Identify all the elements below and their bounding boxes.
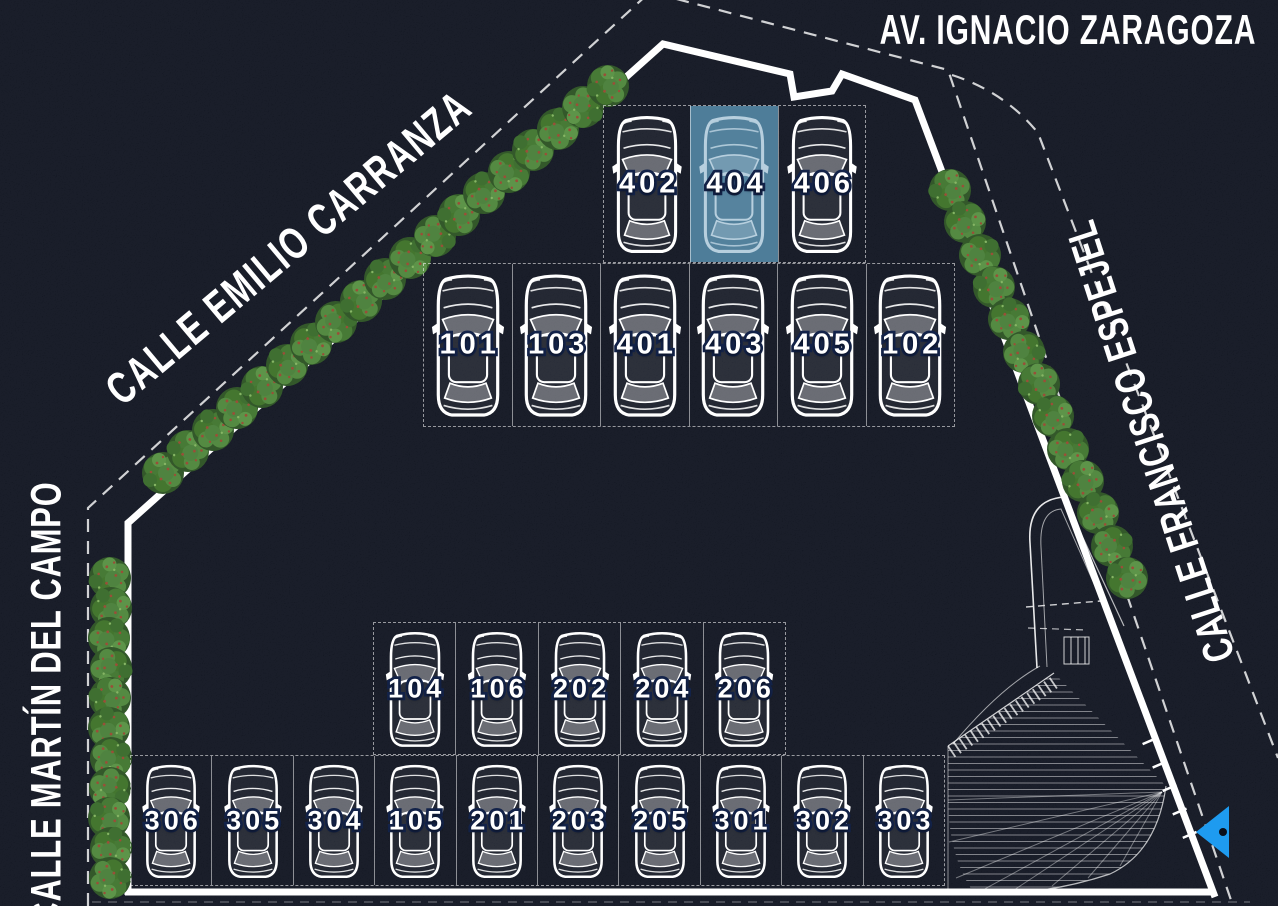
space-number: 206 <box>714 673 775 704</box>
space-number: 405 <box>790 329 854 362</box>
parking-space-404[interactable]: 404 <box>690 106 777 262</box>
parking-space-305[interactable]: 305 <box>211 756 292 885</box>
parking-space-205[interactable]: 205 <box>618 756 699 885</box>
parking-space-102[interactable]: 102 <box>866 264 955 426</box>
parking-space-402[interactable]: 402 <box>604 106 690 262</box>
parking-space-301[interactable]: 301 <box>700 756 781 885</box>
space-number: 103 <box>524 329 588 362</box>
space-number: 302 <box>792 805 853 836</box>
parking-space-306[interactable]: 306 <box>131 756 211 885</box>
space-number: 202 <box>549 673 610 704</box>
space-number: 304 <box>303 805 364 836</box>
space-number: 203 <box>548 805 609 836</box>
parking-row-bottom: 306 305 304 105 201 203 205 301 <box>130 755 945 886</box>
parking-row-upper: 101 103 401 403 405 102 <box>423 263 955 427</box>
space-number: 102 <box>878 329 942 362</box>
parking-space-406[interactable]: 406 <box>778 106 865 262</box>
space-number: 403 <box>701 329 765 362</box>
parking-space-106[interactable]: 106 <box>455 623 537 754</box>
parking-space-105[interactable]: 105 <box>374 756 455 885</box>
parking-space-103[interactable]: 103 <box>512 264 601 426</box>
space-number: 205 <box>629 805 690 836</box>
space-number: 105 <box>385 805 446 836</box>
space-number: 406 <box>790 168 854 201</box>
space-number: 201 <box>466 805 527 836</box>
parking-space-403[interactable]: 403 <box>689 264 778 426</box>
space-number: 106 <box>467 673 528 704</box>
space-number: 301 <box>711 805 772 836</box>
space-number: 305 <box>222 805 283 836</box>
space-number: 101 <box>436 329 500 362</box>
parking-space-401[interactable]: 401 <box>600 264 689 426</box>
parking-space-204[interactable]: 204 <box>620 623 702 754</box>
parking-space-202[interactable]: 202 <box>538 623 620 754</box>
parking-space-101[interactable]: 101 <box>424 264 512 426</box>
parking-space-405[interactable]: 405 <box>777 264 866 426</box>
space-number: 404 <box>702 168 766 201</box>
parking-row-middle: 104 106 202 204 206 <box>373 622 786 755</box>
site-plan: 402 404 406 101 103 401 403 405 <box>0 0 1278 906</box>
space-number: 401 <box>613 329 677 362</box>
parking-space-206[interactable]: 206 <box>703 623 785 754</box>
space-number: 402 <box>615 168 679 201</box>
space-number: 104 <box>384 673 445 704</box>
parking-space-304[interactable]: 304 <box>293 756 374 885</box>
street-label-calle-martin-del-campo: CALLE MARTÍN DEL CAMPO <box>23 481 72 906</box>
parking-space-201[interactable]: 201 <box>456 756 537 885</box>
parking-space-104[interactable]: 104 <box>374 623 455 754</box>
space-number: 306 <box>141 805 202 836</box>
space-number: 204 <box>631 673 692 704</box>
parking-space-303[interactable]: 303 <box>863 756 944 885</box>
parking-space-203[interactable]: 203 <box>537 756 618 885</box>
street-label-av-ignacio-zaragoza: AV. IGNACIO ZARAGOZA <box>880 7 1257 55</box>
space-number: 303 <box>873 805 934 836</box>
parking-space-302[interactable]: 302 <box>781 756 862 885</box>
parking-row-top: 402 404 406 <box>603 105 866 263</box>
